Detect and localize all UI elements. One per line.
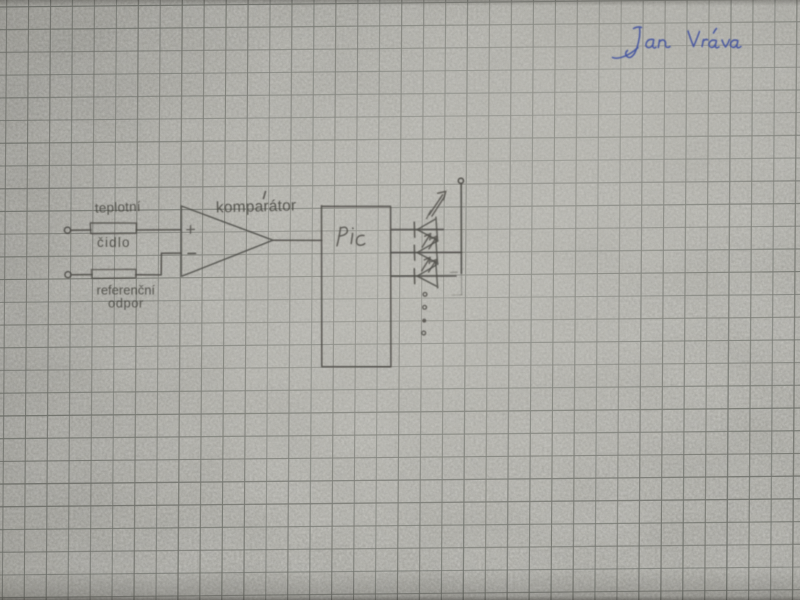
svg-text:čidlo: čidlo [97, 235, 131, 250]
svg-text:odpor: odpor [108, 296, 144, 311]
svg-text:teplotní: teplotní [95, 199, 141, 216]
svg-text:komparátor: komparátor [216, 197, 297, 216]
